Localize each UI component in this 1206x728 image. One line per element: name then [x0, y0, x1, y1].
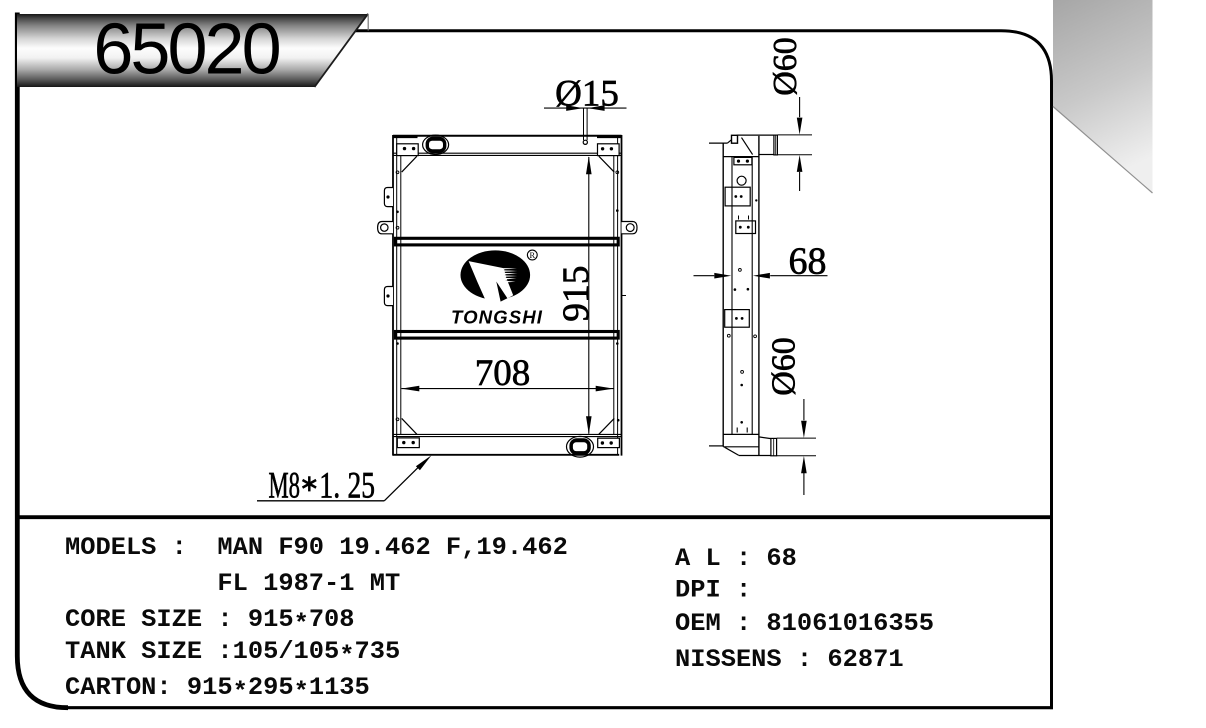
svg-text:68: 68 — [789, 241, 827, 283]
svg-text:CORE SIZE : 915*708: CORE SIZE : 915*708 — [65, 605, 355, 639]
svg-text:1.: 1. — [319, 465, 340, 506]
svg-text:FL 1987-1 MT: FL 1987-1 MT — [217, 569, 400, 598]
svg-text:25: 25 — [348, 465, 376, 506]
svg-text:A L : 68: A L : 68 — [675, 544, 797, 573]
svg-text:M8: M8 — [269, 465, 301, 506]
svg-text:DPI :: DPI : — [675, 576, 751, 605]
svg-text:MODELS : MAN F90 19.462 F,19.: MODELS : MAN F90 19.462 F,19.462 — [65, 533, 568, 562]
svg-text:915: 915 — [556, 265, 597, 321]
svg-text:CARTON: 915*295*1135: CARTON: 915*295*1135 — [65, 673, 370, 707]
svg-text:Ø60: Ø60 — [767, 37, 804, 96]
svg-text:TONGSHI: TONGSHI — [451, 306, 543, 327]
svg-text:R: R — [530, 251, 536, 260]
svg-text:OEM : 81061016355: OEM : 81061016355 — [675, 609, 934, 638]
svg-text:708: 708 — [475, 353, 531, 394]
svg-text:Ø60: Ø60 — [765, 337, 802, 396]
svg-text:NISSENS : 62871: NISSENS : 62871 — [675, 645, 904, 674]
svg-text:65020: 65020 — [93, 10, 279, 90]
svg-text:TANK SIZE :105/105*735: TANK SIZE :105/105*735 — [65, 637, 400, 671]
